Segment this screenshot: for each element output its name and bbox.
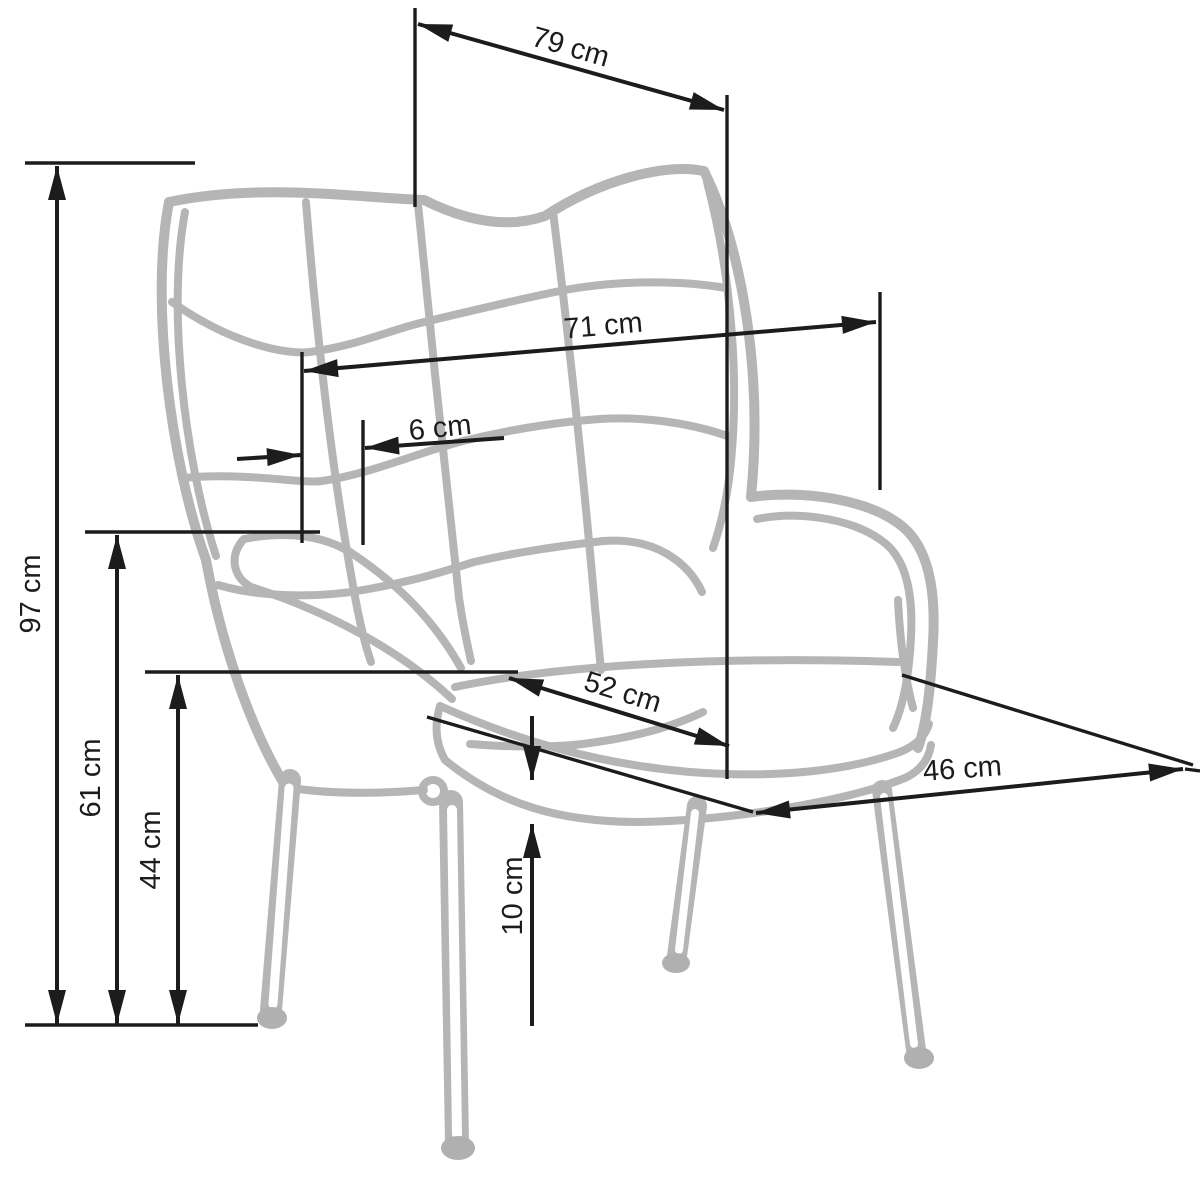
armrest-left-curl [235, 539, 251, 587]
leg-rear-right [662, 806, 697, 973]
projection-line-seat-right [902, 675, 1193, 765]
armrest-left-outer-sweep [251, 587, 452, 699]
dim-label-armrest-height: 61 cm [75, 739, 107, 818]
armrest-left-top-edge [244, 535, 350, 552]
diagram-canvas: 79 cm 71 cm 6 cm 97 cm 61 cm 44 cm 52 cm… [0, 0, 1200, 1178]
dim-label-total-height: 97 cm [15, 555, 47, 634]
quilt-seam-vertical-3 [553, 212, 601, 670]
leg-front-right [882, 790, 934, 1069]
leg-front-left [441, 802, 475, 1160]
backrest-outline [162, 169, 755, 560]
chair-sketch [162, 169, 934, 1160]
dim-arrow-back-offset-left [237, 455, 301, 459]
overshoot-seat-width [1185, 769, 1200, 771]
dim-label-back-width: 71 cm [562, 307, 643, 346]
armrest-right-outer [751, 495, 934, 748]
dim-label-back-offset: 6 cm [407, 409, 473, 447]
dimension-diagram: 79 cm 71 cm 6 cm 97 cm 61 cm 44 cm 52 cm… [0, 0, 1200, 1178]
seat-front-left-corner [437, 706, 445, 760]
projection-line-seat-left [427, 717, 753, 812]
dim-label-cushion-thickness: 10 cm [497, 857, 529, 936]
armrest-right-inner [757, 516, 911, 728]
leg-rear-left [257, 780, 290, 1029]
backrest-left-inner-edge [178, 212, 216, 556]
dim-label-seat-width: 46 cm [922, 750, 1003, 787]
dim-label-seat-height: 44 cm [135, 811, 167, 890]
underseat-rail [292, 788, 424, 793]
